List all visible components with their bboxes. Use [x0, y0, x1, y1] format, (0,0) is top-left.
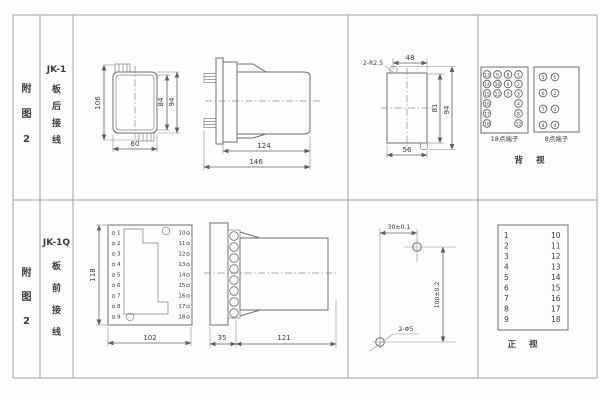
row2-drill-view: 30±0.1 100±0.2 2-Φ5	[370, 224, 456, 351]
svg-text:13: 13	[484, 73, 490, 79]
dim-overall-height: 106	[94, 96, 102, 110]
figure-char: 2	[23, 134, 30, 145]
svg-text:9: 9	[496, 73, 499, 79]
dim-width: 60	[131, 140, 140, 148]
svg-text:15: 15	[178, 283, 186, 289]
front-terminals-right	[187, 232, 190, 319]
figure-char: 图	[22, 108, 32, 120]
front-view-label: 正 视	[508, 339, 543, 350]
dim-body-length: 121	[277, 334, 290, 342]
svg-text:15: 15	[551, 284, 561, 293]
svg-text:8: 8	[504, 305, 509, 314]
row2-side-view: 35 121	[204, 223, 336, 348]
wiring-char: 接	[52, 304, 61, 316]
figure-char: 图	[22, 291, 32, 303]
svg-text:9: 9	[504, 315, 509, 324]
mounting-screw-bottom	[204, 119, 216, 128]
terminal-comb-bottom	[139, 133, 154, 141]
model-label-row1: JK-1 板 后 接 线	[46, 65, 67, 146]
front-terminals-left	[112, 232, 115, 319]
svg-text:4: 4	[504, 263, 509, 272]
figure-char: 附	[22, 266, 32, 279]
svg-text:7: 7	[117, 294, 121, 300]
drawing-sheet: 附 图 2 JK-1 板 后 接 线 附 图 2 JK-1Q 板 前 接 线	[0, 0, 600, 400]
table-grid	[13, 15, 597, 378]
svg-text:7: 7	[542, 107, 545, 113]
svg-text:7: 7	[507, 92, 510, 98]
dim-top-width: 48	[406, 54, 415, 62]
row2-front-table: 1 2 3 4 5 6 7 8 9 10 11 12 13 14 15 16 1…	[498, 225, 568, 350]
cover-step-outline	[124, 229, 168, 314]
dim-horizontal: 30±0.1	[388, 224, 411, 231]
svg-text:9: 9	[117, 315, 121, 321]
dim-body-length: 124	[257, 142, 271, 150]
dim-height: 118	[89, 268, 97, 281]
svg-text:17: 17	[178, 304, 186, 310]
rear-view-label: 背 视	[515, 155, 550, 166]
svg-text:8: 8	[517, 112, 520, 118]
svg-text:12: 12	[551, 252, 561, 261]
svg-text:12: 12	[178, 252, 185, 258]
svg-text:10: 10	[551, 231, 561, 240]
svg-text:4: 4	[117, 262, 121, 268]
dim-case-height: 94	[168, 97, 176, 106]
svg-text:17: 17	[484, 112, 490, 118]
svg-text:17: 17	[551, 305, 561, 314]
terminal-screw-stack	[230, 232, 239, 318]
svg-text:11: 11	[178, 241, 186, 247]
wiring-char: 后	[52, 100, 61, 112]
svg-text:2: 2	[554, 91, 557, 97]
svg-text:2: 2	[117, 241, 121, 247]
figure-label-row1: 附 图 2	[22, 82, 32, 145]
svg-text:4: 4	[554, 123, 557, 129]
terminal-circles-18	[483, 71, 522, 128]
svg-text:8: 8	[542, 123, 545, 129]
svg-text:6: 6	[542, 91, 545, 97]
label-8-point: 8点端子	[545, 134, 569, 143]
svg-text:5: 5	[542, 75, 545, 81]
svg-text:3: 3	[517, 92, 520, 98]
svg-text:10: 10	[495, 82, 501, 88]
svg-text:18: 18	[551, 315, 561, 324]
svg-text:6: 6	[504, 284, 509, 293]
figure-char: 附	[22, 82, 32, 95]
model-label-row2: JK-1Q 板 前 接 线	[42, 238, 71, 338]
svg-text:16: 16	[551, 294, 561, 303]
figure-char: 2	[23, 316, 30, 327]
svg-text:10: 10	[178, 231, 186, 237]
wiring-char: 线	[52, 326, 61, 338]
dim-inner-height: 81	[431, 104, 439, 113]
dim-bottom-width: 56	[403, 146, 412, 154]
svg-text:18: 18	[178, 315, 186, 321]
wiring-char: 板	[52, 83, 62, 95]
dim-width: 102	[143, 334, 156, 342]
hole-spec-label: 2-Φ5	[399, 326, 414, 333]
svg-text:16: 16	[484, 102, 490, 108]
svg-text:1: 1	[554, 75, 557, 81]
svg-text:6: 6	[507, 82, 510, 88]
row1-front-view: 106 84 94 60	[94, 64, 180, 152]
row2-front-view: 1 2 3 4 5 6 7 8 9 10 11 12 13 14 15 16 1…	[89, 225, 192, 346]
dim-vertical: 100±0.2	[434, 282, 441, 309]
svg-text:1: 1	[117, 231, 121, 237]
svg-text:11: 11	[495, 92, 501, 98]
svg-text:13: 13	[178, 262, 186, 268]
cutout-notch-bottom	[421, 143, 428, 150]
wiring-char: 接	[52, 117, 61, 129]
svg-text:7: 7	[504, 294, 509, 303]
front-terminal-numbers-left: 1 2 3 4 5 6 7 8 9	[117, 231, 121, 321]
row1-cutout-view: 2-R2.5 48 81 94 56	[363, 54, 456, 158]
svg-text:12: 12	[516, 122, 522, 128]
svg-text:5: 5	[507, 73, 510, 79]
svg-text:6: 6	[117, 283, 121, 289]
dim-flange: 35	[218, 334, 227, 342]
dim-inner-height: 84	[157, 97, 165, 106]
svg-text:4: 4	[517, 102, 520, 108]
table-numbers-right: 10 11 12 13 14 15 16 17 18	[551, 231, 561, 324]
dim-overall-height: 94	[443, 105, 451, 114]
cutout-notch-top	[390, 67, 397, 74]
model-name: JK-1	[46, 65, 67, 75]
svg-text:14: 14	[551, 273, 561, 282]
model-name: JK-1Q	[42, 238, 71, 248]
svg-text:5: 5	[117, 273, 121, 279]
svg-text:18: 18	[484, 122, 490, 128]
svg-text:5: 5	[504, 273, 509, 282]
svg-text:1: 1	[504, 231, 509, 240]
svg-text:13: 13	[551, 263, 561, 272]
svg-text:3: 3	[554, 107, 557, 113]
wiring-char: 前	[52, 282, 61, 294]
row1-side-view: 124 146	[204, 58, 320, 170]
svg-text:14: 14	[484, 82, 490, 88]
label-18-point: 18点端子	[491, 134, 519, 143]
wiring-char: 线	[52, 134, 61, 146]
svg-text:3: 3	[117, 252, 121, 258]
svg-text:15: 15	[484, 92, 490, 98]
figure-label-row2: 附 图 2	[22, 266, 32, 327]
front-terminal-numbers-right: 10 11 12 13 14 15 16 17 18	[178, 231, 186, 321]
svg-text:8: 8	[117, 304, 121, 310]
svg-text:11: 11	[551, 242, 561, 251]
svg-text:1: 1	[517, 73, 520, 79]
svg-text:3: 3	[504, 252, 509, 261]
svg-text:16: 16	[178, 294, 186, 300]
terminal-circles-8	[539, 73, 559, 129]
svg-text:2: 2	[504, 242, 509, 251]
terminal-comb-top	[115, 64, 130, 72]
svg-text:14: 14	[178, 273, 186, 279]
dim-overall-length: 146	[249, 158, 263, 166]
row1-rear-view: 13 9 5 1 14 10 6 2 15 11 7 3 16 17 18 4 …	[481, 67, 579, 166]
drawing-canvas: 附 图 2 JK-1 板 后 接 线 附 图 2 JK-1Q 板 前 接 线	[0, 0, 600, 400]
mounting-hole-top	[162, 227, 170, 235]
wiring-char: 板	[52, 260, 62, 272]
corner-radius-label: 2-R2.5	[363, 60, 383, 67]
table-numbers-left: 1 2 3 4 5 6 7 8 9	[504, 231, 509, 324]
mounting-screw-top	[204, 74, 216, 83]
svg-text:2: 2	[517, 82, 520, 88]
